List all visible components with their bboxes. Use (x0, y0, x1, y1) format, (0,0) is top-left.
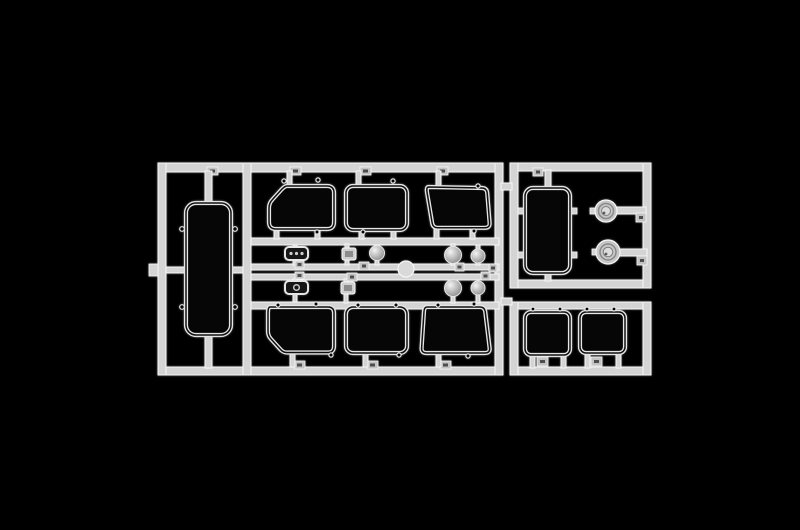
locating-peg (233, 227, 238, 232)
left-frame-left-runner (158, 163, 166, 375)
right-frame-left-runner (510, 163, 518, 288)
upper-middle-window-part (346, 171, 407, 239)
frame-bridge (501, 183, 512, 190)
right-frame-bottom-left-runner (510, 302, 518, 375)
locating-peg (531, 307, 535, 311)
locating-peg (315, 230, 319, 234)
right-frame-mid-runner (510, 280, 651, 288)
frame-bridge (501, 298, 512, 305)
locating-peg (558, 307, 562, 311)
dome-lens-part (445, 247, 462, 264)
sprue-gate (166, 267, 186, 273)
locating-peg (276, 303, 280, 307)
small-lens-block-part (341, 279, 355, 303)
injection-gate-tab (149, 264, 158, 276)
dome-lens-part (445, 280, 462, 297)
dome-lens-part (471, 249, 485, 263)
marker-light-cluster-ring-part (285, 279, 308, 302)
locating-peg (476, 184, 480, 188)
locating-peg (329, 353, 333, 357)
lower-door-window-part (268, 302, 334, 367)
right-frame-bottom-right-runner (643, 302, 651, 375)
locating-peg (436, 303, 440, 307)
locating-peg (612, 307, 616, 311)
upper-sub-runner (251, 238, 499, 245)
locating-peg (391, 179, 395, 183)
sprue (149, 163, 651, 375)
upper-rear-window-part (427, 171, 490, 239)
locating-peg (356, 303, 360, 307)
small-lens-block-part (342, 244, 356, 265)
middle-runner-2 (251, 274, 499, 280)
right-frame-bottom (501, 298, 651, 375)
side-window-glazing-part-1 (525, 307, 570, 368)
headlamp-lens-part-2 (592, 240, 647, 265)
locating-peg (180, 227, 185, 232)
locating-peg (394, 303, 398, 307)
dome-lens-part (471, 281, 485, 295)
locating-peg (585, 307, 589, 311)
right-frame-right-runner (643, 163, 651, 288)
locating-peg (466, 354, 470, 358)
windscreen-glazing-part (166, 171, 243, 368)
right-frame-top-runner (510, 163, 651, 171)
sprue-stub (205, 334, 212, 368)
locating-peg (472, 229, 476, 233)
lower-middle-window-part (346, 303, 407, 367)
lower-rear-window-part (422, 302, 490, 367)
left-frame-divider-runner (243, 163, 251, 375)
round-ball-lens-part (370, 246, 385, 266)
locating-peg (233, 305, 238, 310)
side-window-glazing-part-2 (580, 307, 625, 368)
sprue-gate (619, 249, 647, 256)
rear-window-glazing-part (518, 170, 577, 281)
sprue-stub (436, 354, 441, 367)
flat-round-disc-lens-part (398, 261, 414, 277)
headlamp-lens-part-1 (590, 200, 646, 222)
locating-peg (361, 230, 365, 234)
locating-peg (316, 178, 320, 182)
locating-peg (180, 305, 185, 310)
locating-peg (314, 302, 318, 306)
locating-peg (472, 302, 476, 306)
sprue-stub (205, 171, 212, 205)
sprue-photo (0, 0, 800, 530)
right-frame-top (501, 163, 651, 288)
upper-door-window-part (269, 171, 334, 239)
locating-peg (282, 179, 286, 183)
locating-peg (397, 353, 401, 357)
